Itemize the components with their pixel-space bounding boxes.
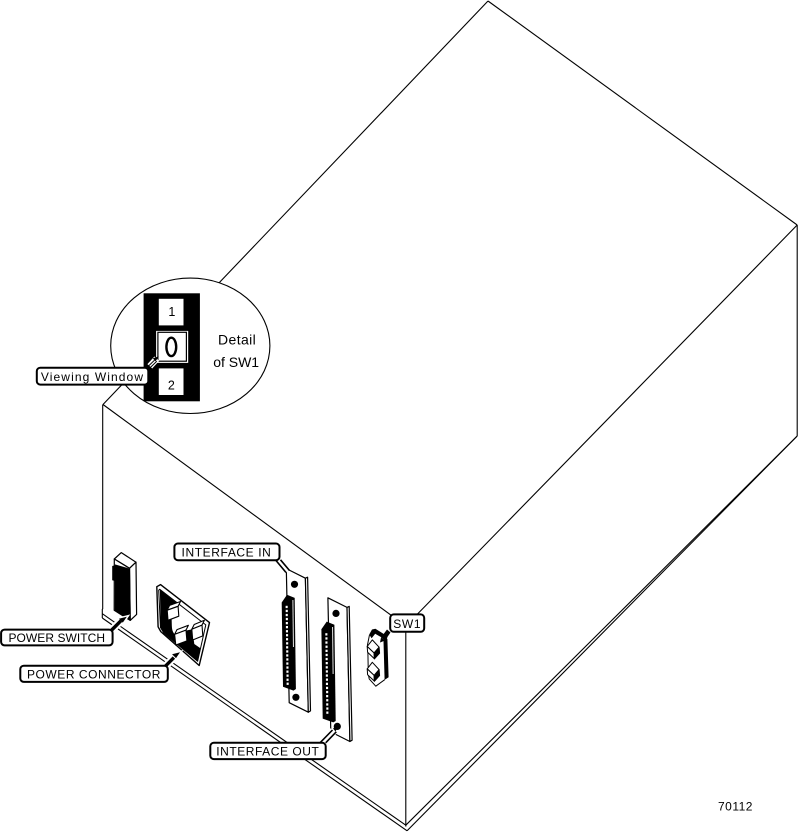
svg-text:INTERFACE OUT: INTERFACE OUT <box>216 745 319 759</box>
svg-text:of SW1: of SW1 <box>213 354 259 370</box>
svg-text:POWER CONNECTOR: POWER CONNECTOR <box>27 668 161 682</box>
svg-text:2: 2 <box>168 379 175 393</box>
svg-text:70112: 70112 <box>718 800 753 814</box>
svg-text:INTERFACE IN: INTERFACE IN <box>182 546 272 560</box>
svg-text:POWER SWITCH: POWER SWITCH <box>8 631 105 645</box>
svg-text:SW1: SW1 <box>393 617 421 631</box>
svg-text:Viewing Window: Viewing Window <box>41 370 144 384</box>
svg-text:Detail: Detail <box>218 331 256 347</box>
svg-text:1: 1 <box>168 305 175 319</box>
